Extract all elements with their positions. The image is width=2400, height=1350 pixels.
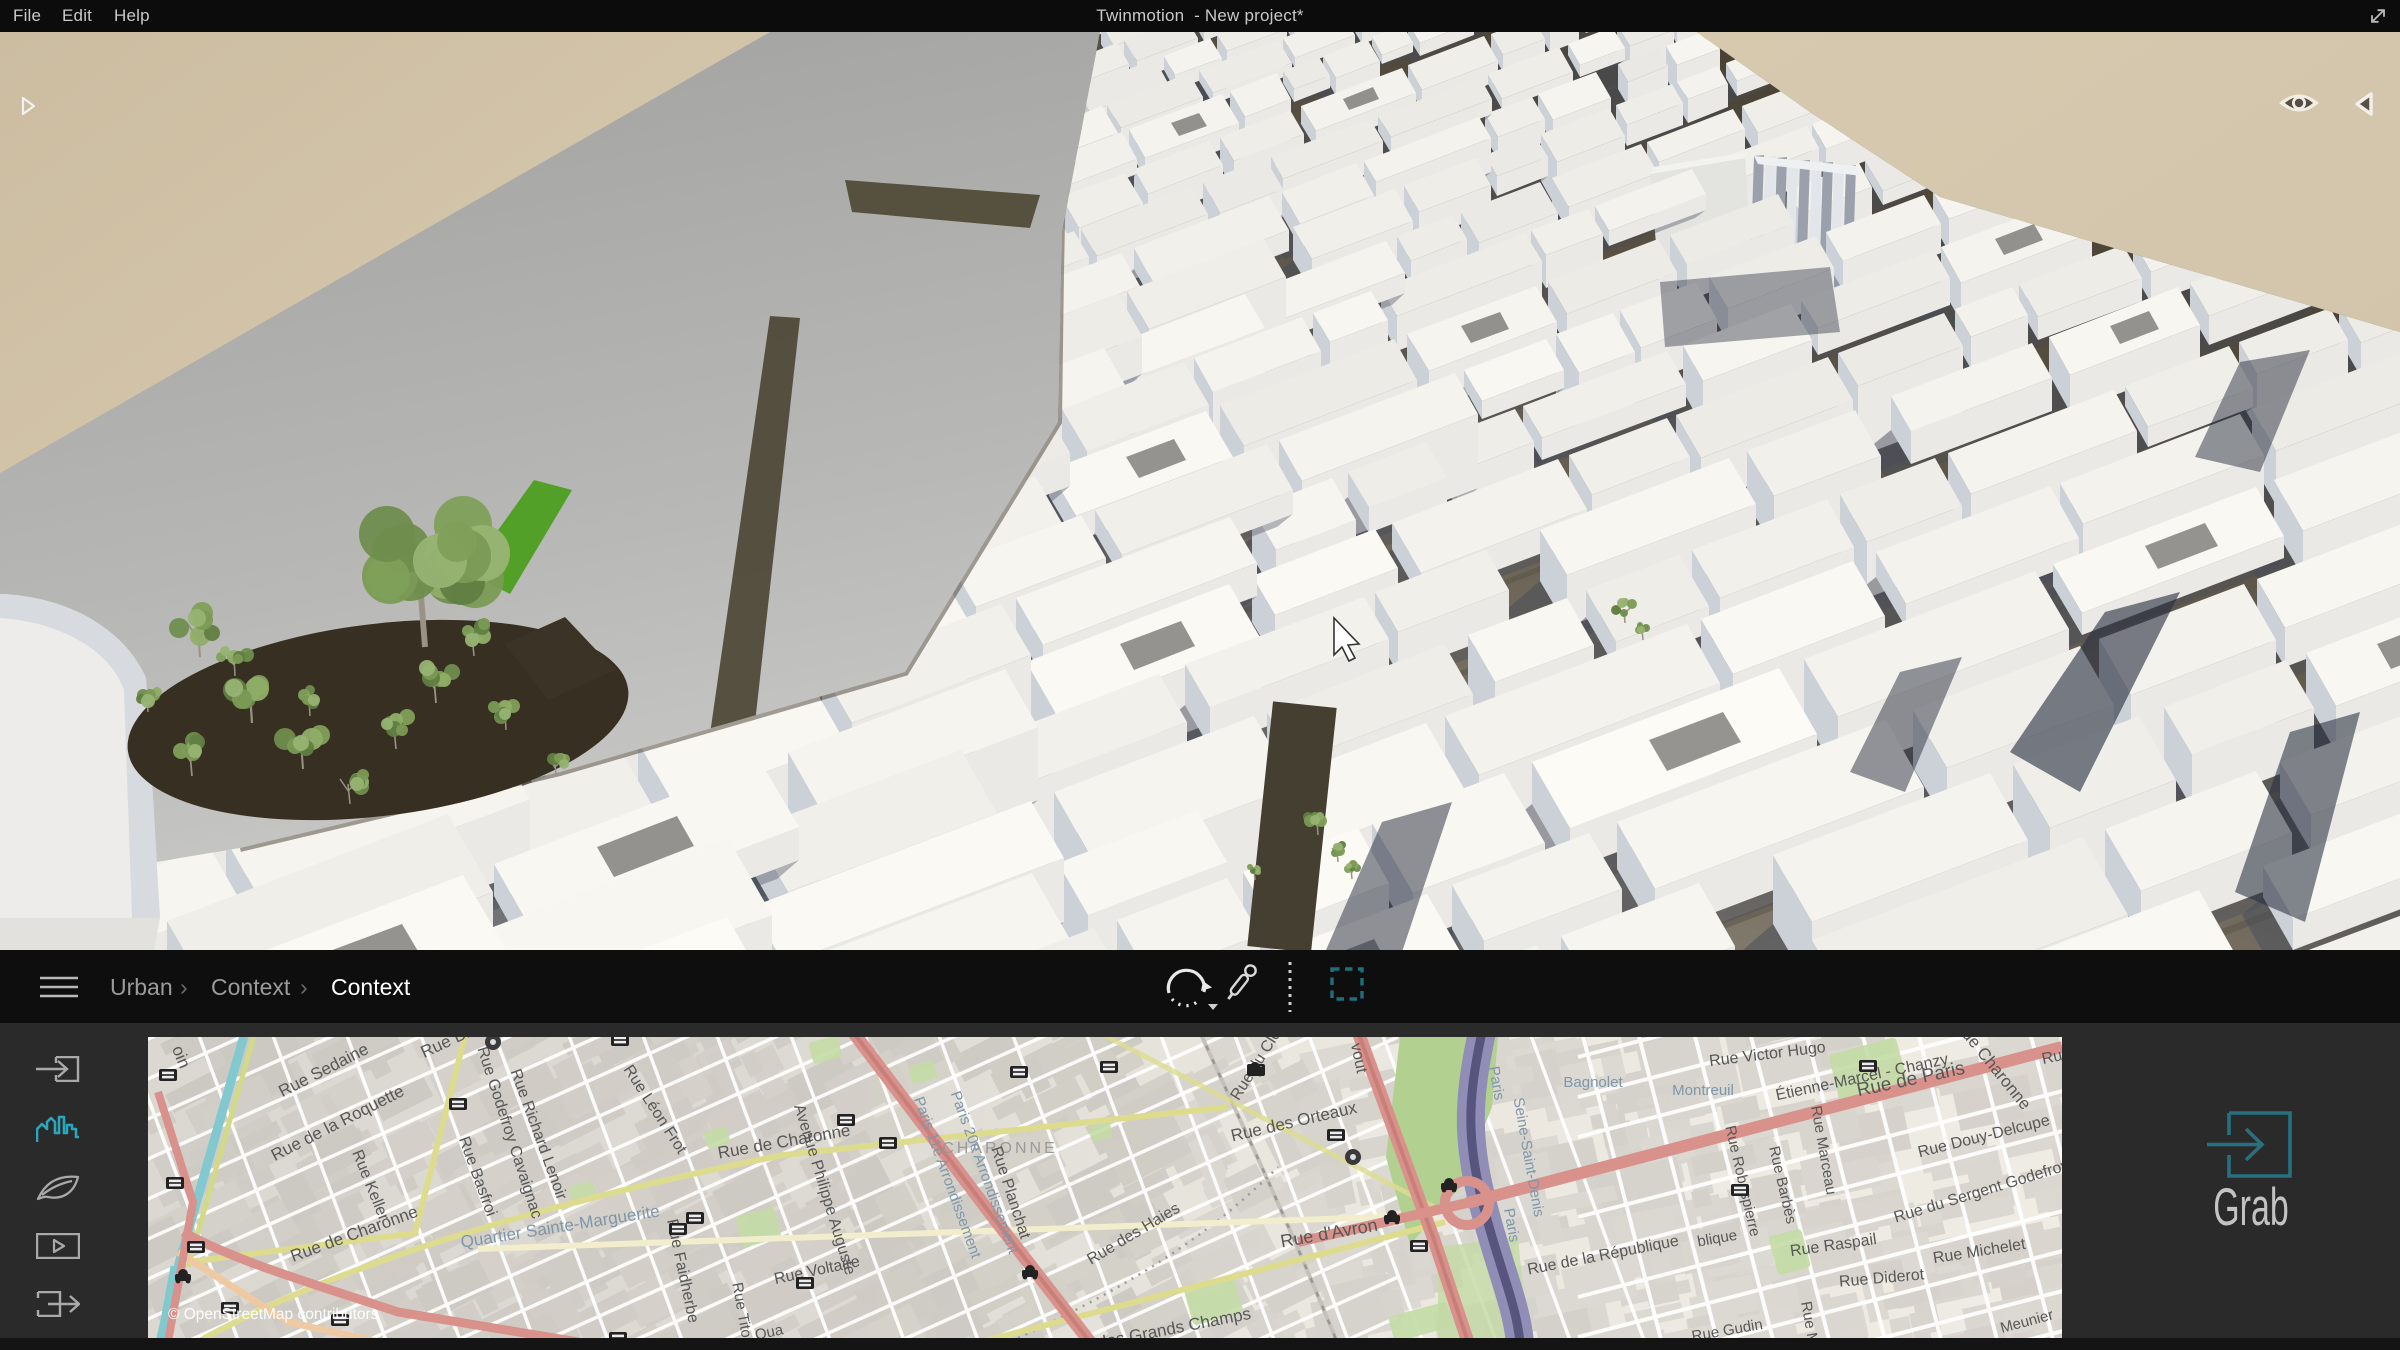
svg-text:Bagnolet: Bagnolet bbox=[1563, 1074, 1623, 1091]
svg-text:© OpenStreetMap contributors: © OpenStreetMap contributors bbox=[168, 1306, 379, 1323]
svg-text:Montreuil: Montreuil bbox=[1672, 1082, 1734, 1099]
